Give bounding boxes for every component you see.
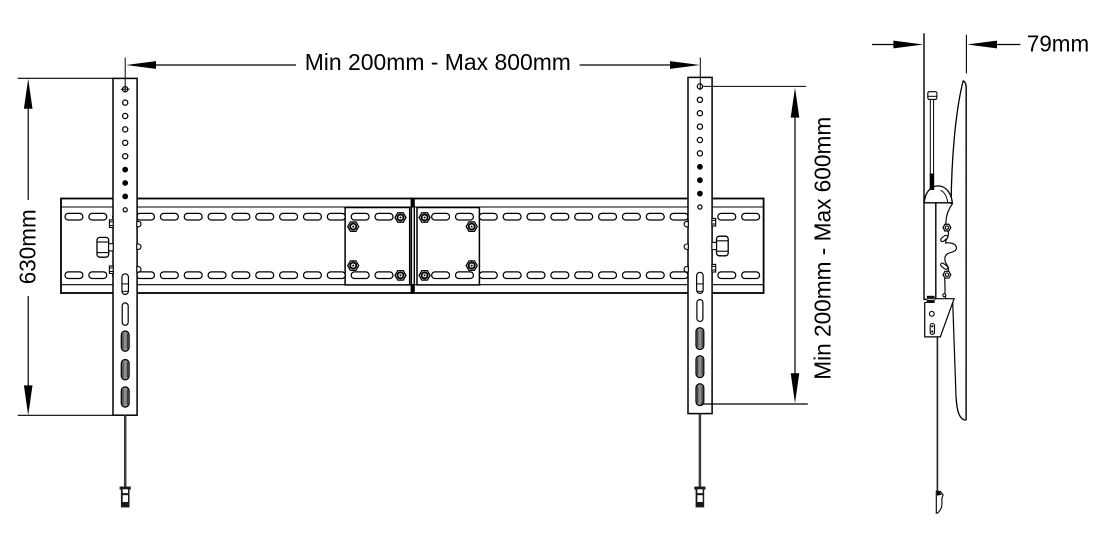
- svg-text:79mm: 79mm: [1027, 30, 1089, 56]
- svg-text:Min 200mm - Max 800mm: Min 200mm - Max 800mm: [305, 49, 571, 75]
- svg-text:Min 200mm - Max 600mm: Min 200mm - Max 600mm: [810, 117, 836, 380]
- svg-text:630mm: 630mm: [15, 209, 41, 284]
